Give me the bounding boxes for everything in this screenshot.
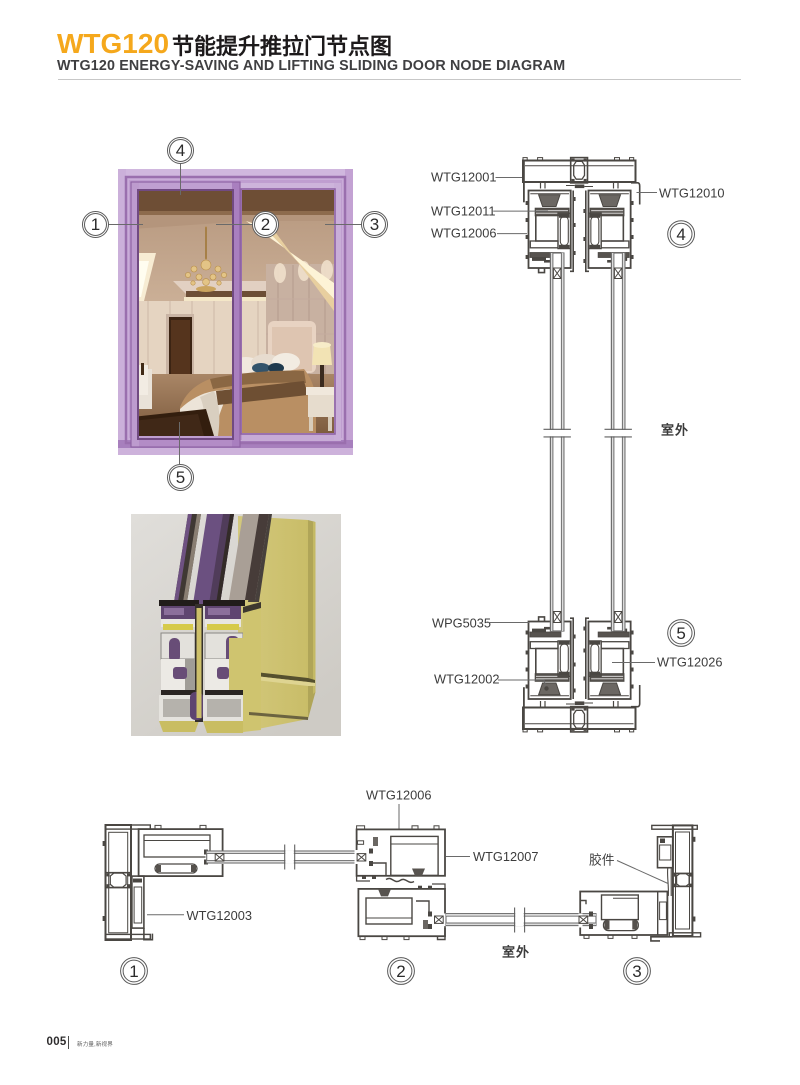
svg-text:3: 3 [632, 962, 641, 981]
svg-text:WTG12001: WTG12001 [431, 170, 496, 185]
svg-text:WTG12026: WTG12026 [657, 655, 722, 670]
svg-text:WTG12007: WTG12007 [473, 849, 538, 864]
svg-text:2: 2 [396, 962, 405, 981]
svg-text:4: 4 [676, 225, 685, 244]
svg-text:1: 1 [129, 962, 138, 981]
svg-text:WTG12006: WTG12006 [366, 788, 431, 803]
svg-text:WTG12006: WTG12006 [431, 226, 496, 241]
svg-text:WTG12011: WTG12011 [431, 204, 495, 219]
svg-text:WPG5035: WPG5035 [432, 616, 491, 631]
svg-text:室外: 室外 [502, 945, 530, 960]
svg-text:WTG12003: WTG12003 [187, 908, 252, 923]
svg-text:室外: 室外 [661, 423, 689, 438]
svg-text:WTG12002: WTG12002 [434, 672, 499, 687]
svg-text:胶件: 胶件 [589, 853, 615, 868]
svg-text:WTG12010: WTG12010 [659, 186, 724, 201]
svg-text:5: 5 [676, 624, 685, 643]
